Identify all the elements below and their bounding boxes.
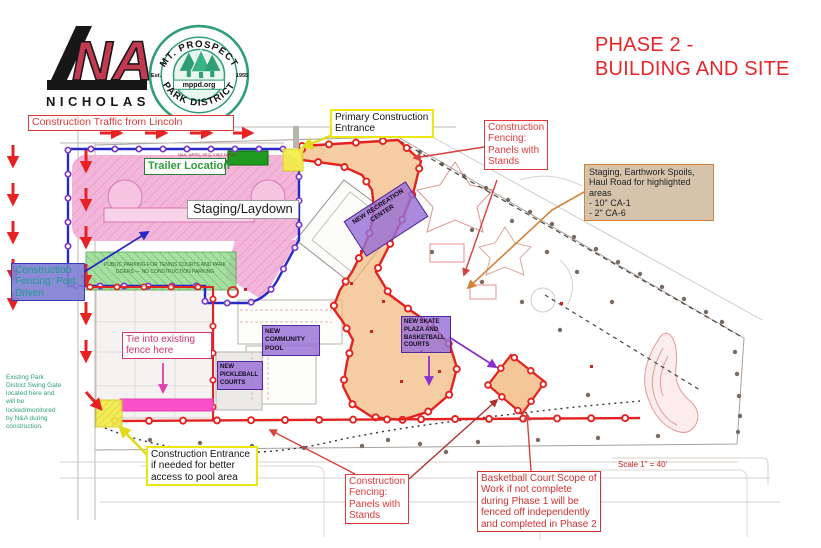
staging-spoils-line1: Staging, Earthwork Spoils, Haul Road for…	[589, 167, 709, 198]
callout-staging-spoils: Staging, Earthwork Spoils, Haul Road for…	[584, 164, 714, 221]
garden-linework	[417, 162, 582, 312]
callout-tie-fence: Tie into existing fence here	[122, 332, 212, 359]
public-parking-note: PUBLIC PARKING FOR TENNIS COURTS AND PAR…	[98, 262, 232, 276]
parking-strip-note: N&A, MPPD, SEQ, VISIT PARKG	[178, 152, 246, 157]
tag-skate-plaza: NEW SKATE PLAZA AND BASKETBALL COURTS	[401, 316, 451, 353]
staging-spoils-line3: - 2" CA-6	[589, 208, 709, 218]
park-district-seal: mppd.org MT. PROSPECT PARK DISTRICT Est.…	[148, 24, 250, 126]
seal-year: 1955	[236, 73, 248, 79]
note-swing-gate: Existing Park District Swing Gate locate…	[6, 374, 64, 431]
callout-fencing-panels-top: Construction Fencing: Panels with Stands	[484, 120, 548, 170]
nicholas-logo: NA NICHOLAS	[42, 20, 152, 112]
seal-est: Est.	[151, 73, 162, 79]
tie-in-strip	[120, 399, 213, 411]
title-line2: BUILDING AND SITE	[595, 57, 790, 81]
callout-staging-laydown: Staging/Laydown	[187, 200, 299, 219]
logo-mark-text: NA	[72, 29, 152, 92]
tag-pickleball-courts: NEW PICKLEBALL COURTS	[217, 361, 263, 390]
callout-trailer-location: Trailer Location	[144, 158, 226, 175]
staging-spoils-line2: - 10" CA-1	[589, 198, 709, 208]
tag-community-pool: NEW COMMUNITY POOL	[262, 325, 320, 356]
company-name: NICHOLAS	[46, 94, 150, 109]
phase2-site-plan-slide: NA NICHOLAS mppd.org MT. PROSPECT	[0, 0, 821, 548]
callout-fencing-post-driven: Construction Fencing: Post Driven	[11, 263, 85, 301]
page-title: PHASE 2 - BUILDING AND SITE	[595, 33, 790, 82]
highlight-orange-zone	[302, 140, 545, 420]
title-line1: PHASE 2 -	[595, 33, 790, 57]
callout-pool-entrance: Construction Entrance if needed for bett…	[146, 446, 258, 486]
callout-construction-traffic: Construction Traffic from Lincoln	[28, 115, 234, 131]
seal-banner: mppd.org	[183, 81, 216, 89]
pond-hill	[645, 333, 698, 432]
scale-note: Scale 1" = 40'	[618, 460, 667, 469]
callout-basketball-scope: Basketball Court Scope of Work if not co…	[477, 471, 601, 532]
callout-fencing-panels-bottom: Construction Fencing: Panels with Stands	[345, 474, 409, 524]
callout-primary-entrance: Primary Construction Entrance	[330, 109, 434, 138]
